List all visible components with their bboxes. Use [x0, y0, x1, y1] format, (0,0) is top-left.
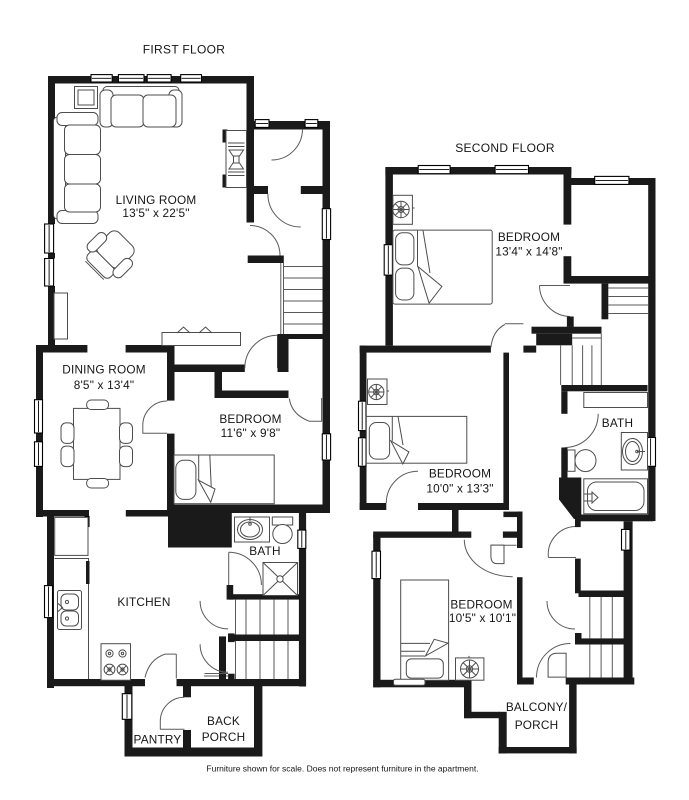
svg-text:13'5" x 22'5": 13'5" x 22'5"	[122, 206, 189, 220]
svg-text:PORCH: PORCH	[202, 730, 246, 744]
svg-text:13'4" x 14'8": 13'4" x 14'8"	[495, 245, 562, 259]
svg-text:BEDROOM: BEDROOM	[429, 466, 491, 480]
svg-text:BEDROOM: BEDROOM	[498, 230, 560, 244]
svg-text:10'0" x 13'3": 10'0" x 13'3"	[426, 481, 493, 495]
svg-text:BATH: BATH	[249, 544, 280, 558]
svg-text:8'5" x 13'4": 8'5" x 13'4"	[74, 378, 135, 392]
svg-text:LIVING ROOM: LIVING ROOM	[116, 193, 197, 207]
svg-text:BATH: BATH	[602, 416, 633, 430]
svg-text:BEDROOM: BEDROOM	[219, 412, 281, 426]
svg-text:KITCHEN: KITCHEN	[117, 595, 170, 609]
svg-text:FIRST FLOOR: FIRST FLOOR	[143, 43, 225, 57]
svg-text:BALCONY/: BALCONY/	[506, 700, 568, 714]
svg-text:11'6" x 9'8": 11'6" x 9'8"	[221, 426, 281, 440]
svg-text:DINING ROOM: DINING ROOM	[62, 363, 145, 377]
svg-text:Furniture shown for scale. Doe: Furniture shown for scale. Does not repr…	[206, 764, 478, 774]
svg-text:BEDROOM: BEDROOM	[450, 597, 512, 611]
svg-text:PANTRY: PANTRY	[134, 733, 182, 747]
svg-text:BACK: BACK	[207, 714, 240, 728]
svg-text:PORCH: PORCH	[515, 718, 559, 732]
svg-text:SECOND FLOOR: SECOND FLOOR	[455, 141, 555, 155]
svg-text:10'5" x 10'1": 10'5" x 10'1"	[449, 611, 516, 625]
